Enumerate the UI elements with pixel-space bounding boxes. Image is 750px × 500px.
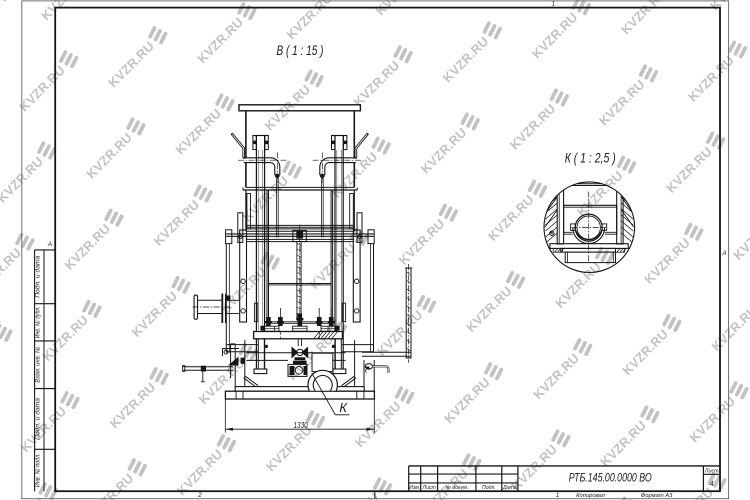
svg-text:Подп.: Подп. bbox=[482, 485, 496, 491]
svg-text:№ докум.: № докум. bbox=[445, 485, 468, 491]
svg-text:РТБ.145.00.0000 ВО: РТБ.145.00.0000 ВО bbox=[569, 471, 652, 485]
svg-text:А: А bbox=[722, 250, 727, 257]
svg-text:Подп. и дата: Подп. и дата bbox=[36, 255, 42, 298]
svg-text:4: 4 bbox=[710, 481, 714, 488]
svg-text:Лист: Лист bbox=[422, 485, 437, 491]
svg-text:1330: 1330 bbox=[294, 421, 309, 430]
svg-text:Формат А3: Формат А3 bbox=[641, 493, 673, 499]
svg-text:Дата: Дата bbox=[502, 485, 517, 491]
svg-text:К ( 1 : 2,5 ): К ( 1 : 2,5 ) bbox=[565, 150, 616, 165]
svg-text:Взам. инв. №: Взам. инв. № bbox=[35, 346, 42, 382]
svg-text:К: К bbox=[339, 400, 348, 415]
svg-text:Лист: Лист bbox=[704, 469, 719, 475]
svg-text:1: 1 bbox=[552, 0, 555, 7]
svg-text:А: А bbox=[47, 241, 52, 248]
svg-text:Изм.: Изм. bbox=[409, 485, 420, 491]
svg-text:Копировал: Копировал bbox=[576, 493, 606, 499]
svg-text:Подп. и дата: Подп. и дата bbox=[36, 397, 42, 440]
svg-text:1: 1 bbox=[556, 493, 559, 499]
svg-text:В ( 1 : 15 ): В ( 1 : 15 ) bbox=[277, 43, 324, 58]
svg-text:2: 2 bbox=[197, 492, 202, 499]
svg-text:Инв. № подл.: Инв. № подл. bbox=[35, 453, 42, 487]
svg-text:Инв. № дубл.: Инв. № дубл. bbox=[35, 306, 42, 338]
